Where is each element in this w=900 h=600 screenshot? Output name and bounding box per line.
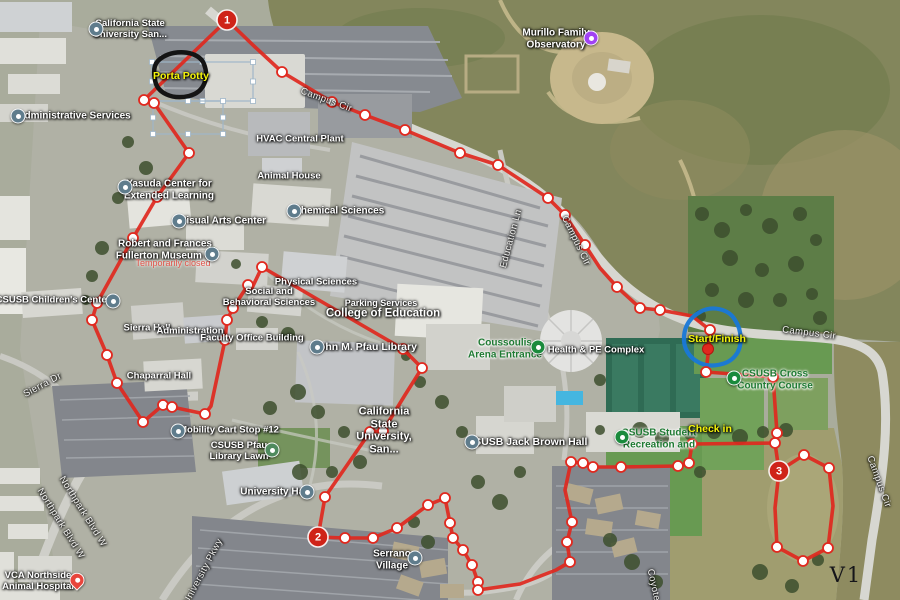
bus-icon[interactable]: [171, 424, 186, 439]
map-label-csusb-center: CaliforniaStateUniversity,San...: [356, 406, 411, 457]
icon-glyph: [732, 376, 737, 381]
map-label-temporarily-closed: Temporarily closed: [135, 258, 210, 268]
map-label-text: CSUSB Student: [622, 428, 697, 440]
map-label-text: Health & PE Complex: [548, 346, 645, 357]
map-label-health-pe-complex: Health & PE Complex: [548, 346, 645, 357]
map-label-text: Start/Finish: [688, 333, 746, 345]
map-label-text: Murillo Family: [522, 28, 589, 40]
icon-glyph: [16, 114, 21, 119]
map-label-text: State: [356, 418, 411, 431]
map-label-text: Check in: [688, 423, 732, 435]
map-label-childrens-center[interactable]: CSUSB Children's Center: [0, 296, 110, 307]
map-label-administrative-services[interactable]: Administrative Services: [17, 110, 130, 122]
map-label-social-behavioral-sciences: Social andBehavioral Sciences: [223, 287, 315, 309]
icon-glyph: [620, 435, 625, 440]
map-label-text: Campus Cir: [299, 87, 354, 116]
observatory-icon[interactable]: [584, 31, 599, 46]
map-label-text: Yasuda Center for: [124, 179, 214, 191]
icon-glyph: [111, 299, 116, 304]
recreation-icon[interactable]: [615, 430, 630, 445]
map-label-start-finish[interactable]: Start/Finish: [688, 333, 746, 345]
map-label-sierra-dr: Sierra Dr: [22, 371, 64, 400]
map-label-college-of-education: College of Education: [326, 307, 440, 320]
map-label-jack-brown-hall[interactable]: CSUSB Jack Brown Hall: [467, 436, 588, 448]
park-icon[interactable]: [265, 443, 280, 458]
map-label-john-m-pfau-library[interactable]: John M. Pfau Library: [313, 341, 417, 353]
hall-icon[interactable]: [300, 485, 315, 500]
map-label-hvac-central-plant: HVAC Central Plant: [256, 135, 343, 146]
map-label-text: Campus Cir: [558, 214, 592, 267]
map-label-university-pkwy: University Pkwy: [182, 537, 226, 600]
map-label-vca-northside[interactable]: VCA NorthsideAnimal Hospital: [2, 571, 74, 593]
map-label-text: Recreation and: [622, 439, 697, 451]
icon-glyph: [73, 577, 80, 584]
map-label-campus-cir-top: Campus Cir: [299, 87, 354, 116]
map-label-text: San...: [356, 444, 411, 457]
map-label-text: Porta Potty: [153, 70, 209, 82]
map-label-text: CSUSB Cross: [737, 369, 813, 381]
map-label-text: Faculty Office Building: [200, 334, 303, 345]
icon-glyph: [413, 556, 418, 561]
map-label-visual-arts-center[interactable]: Visual Arts Center: [180, 215, 266, 227]
icon-glyph: [176, 429, 181, 434]
map-label-faculty-office-building: Faculty Office Building: [200, 334, 303, 345]
map-label-check-in[interactable]: Check in: [688, 423, 732, 435]
map-label-text: Chaparral Hall: [127, 372, 191, 383]
map-label-text: Extended Learning: [124, 190, 214, 202]
map-label-campus-cir-east: Campus Cir: [781, 325, 836, 342]
map-label-text: Visual Arts Center: [180, 215, 266, 227]
arts-icon[interactable]: [172, 214, 187, 229]
icon-glyph: [292, 209, 297, 214]
icon-glyph: [470, 440, 475, 445]
map-label-text: John M. Pfau Library: [313, 341, 417, 353]
icon-glyph: [270, 448, 275, 453]
map-label-text: Robert and Frances: [116, 239, 214, 251]
map-label-animal-house: Animal House: [257, 172, 320, 183]
map-label-text: Serrano: [373, 549, 411, 561]
campus-course-map: 123 California StateUniversity San...Adm…: [0, 0, 900, 600]
map-label-student-recreation[interactable]: CSUSB StudentRecreation and: [622, 428, 697, 451]
map-label-text: Temporarily closed: [135, 258, 210, 268]
icon-glyph: [305, 490, 310, 495]
library-icon[interactable]: [310, 340, 325, 355]
village-icon[interactable]: [408, 551, 423, 566]
map-label-text: HVAC Central Plant: [256, 135, 343, 146]
map-label-text: California: [356, 406, 411, 419]
icon-glyph: [123, 185, 128, 190]
map-label-version: V1: [830, 563, 863, 587]
map-label-text: Behavioral Sciences: [223, 298, 315, 309]
map-label-chemical-sciences[interactable]: Chemical Sciences: [294, 205, 385, 217]
map-label-mobility-cart-stop[interactable]: Mobility Cart Stop #12: [179, 426, 279, 437]
course-pin-icon[interactable]: [727, 371, 742, 386]
university-icon[interactable]: [89, 22, 104, 37]
map-label-text: Administrative Services: [17, 110, 130, 122]
yasuda-icon[interactable]: [118, 180, 133, 195]
icon-glyph: [94, 27, 99, 32]
map-label-campus-cir-mid: Campus Cir: [558, 214, 592, 267]
map-labels-layer: California StateUniversity San...Adminis…: [0, 0, 900, 600]
map-label-text: University,: [356, 431, 411, 444]
map-label-education-ln: Education Ln: [499, 208, 525, 269]
icon-glyph: [210, 252, 215, 257]
school-icon[interactable]: [465, 435, 480, 450]
icon-glyph: [536, 345, 541, 350]
map-label-chaparral-hall: Chaparral Hall: [127, 372, 191, 383]
map-label-serrano-village[interactable]: SerranoVillage: [373, 549, 411, 572]
icon-glyph: [589, 36, 594, 41]
map-label-text: Coyote Dr: [644, 568, 664, 600]
map-label-campus-cir-right: Campus Cir: [864, 455, 893, 510]
icon-glyph: [177, 219, 182, 224]
map-label-text: CSUSB Children's Center: [0, 296, 110, 307]
map-label-csusb-top[interactable]: California StateUniversity San...: [93, 19, 167, 41]
map-label-text: Country Course: [737, 380, 813, 392]
map-label-porta-potty[interactable]: Porta Potty: [153, 70, 209, 82]
map-label-text: Animal House: [257, 172, 320, 183]
map-label-murillo-observatory[interactable]: Murillo FamilyObservatory: [522, 28, 589, 51]
map-label-text: Animal Hospital: [2, 582, 74, 593]
map-label-text: CSUSB Jack Brown Hall: [467, 436, 588, 448]
map-label-text: Observatory: [522, 39, 589, 51]
map-label-text: Village: [373, 560, 411, 572]
map-label-yasuda-center[interactable]: Yasuda Center forExtended Learning: [124, 179, 214, 202]
map-label-text: Campus Cir: [864, 455, 893, 510]
map-label-text: Chemical Sciences: [294, 205, 385, 217]
map-label-text: University Pkwy: [182, 537, 226, 600]
map-label-text: Mobility Cart Stop #12: [179, 426, 279, 437]
map-label-text: Education Ln: [499, 208, 525, 269]
accessible-entrance-icon[interactable]: [531, 340, 546, 355]
map-label-text: Sierra Dr: [22, 371, 64, 400]
map-label-text: College of Education: [326, 307, 440, 320]
chemistry-icon[interactable]: [287, 204, 302, 219]
services-icon[interactable]: [11, 109, 26, 124]
map-label-text: V1: [830, 563, 863, 587]
map-label-text: Library Lawn: [209, 452, 268, 463]
museum-icon[interactable]: [205, 247, 220, 262]
icon-glyph: [315, 345, 320, 350]
map-label-coyote-dr: Coyote Dr: [644, 568, 664, 600]
map-label-text: Campus Cir: [781, 325, 836, 342]
map-label-pfau-library-lawn[interactable]: CSUSB PfauLibrary Lawn: [209, 441, 268, 463]
map-label-text: University San...: [93, 30, 167, 41]
map-label-cross-country-course[interactable]: CSUSB CrossCountry Course: [737, 369, 813, 392]
childcare-icon[interactable]: [106, 294, 121, 309]
